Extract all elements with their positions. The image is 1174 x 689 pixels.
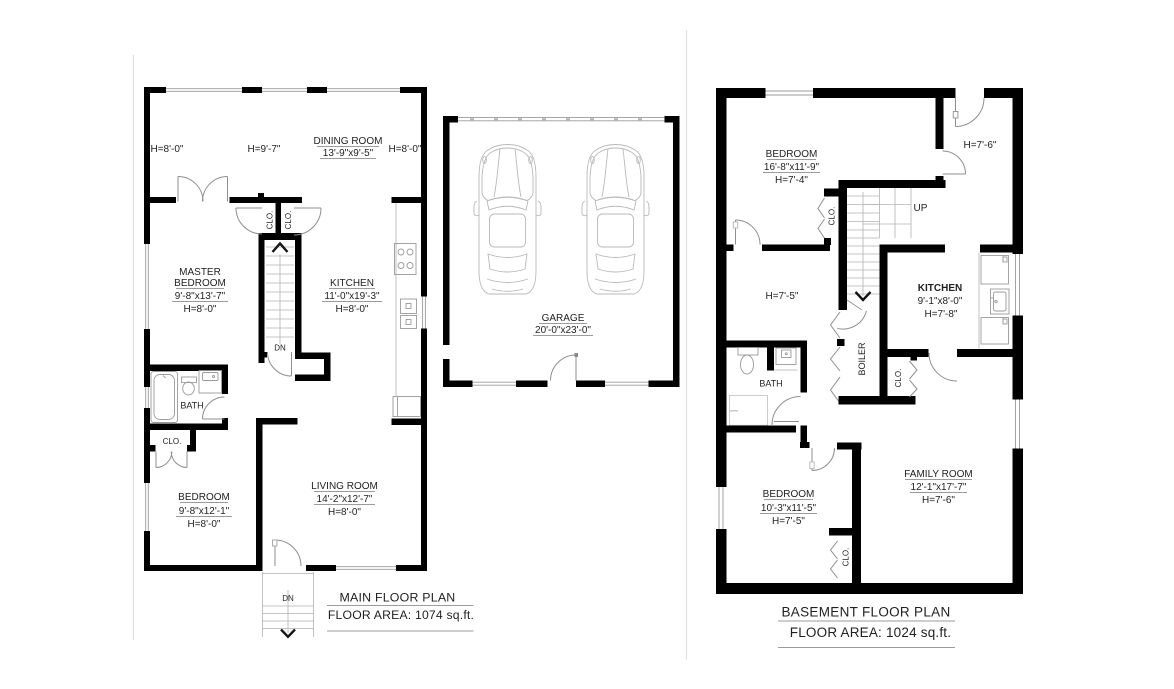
svg-text:H=7'-6": H=7'-6": [922, 495, 955, 506]
svg-text:KITCHEN: KITCHEN: [918, 283, 962, 294]
svg-text:BEDROOM: BEDROOM: [174, 278, 226, 289]
svg-text:11'-0"x19'-3": 11'-0"x19'-3": [324, 291, 380, 302]
svg-text:12'-1"x17'-7": 12'-1"x17'-7": [911, 482, 967, 493]
svg-text:GARAGE: GARAGE: [542, 313, 585, 324]
svg-text:BATH: BATH: [180, 401, 203, 411]
svg-text:H=7'-6": H=7'-6": [964, 140, 997, 151]
svg-text:BEDROOM: BEDROOM: [766, 149, 818, 160]
svg-text:MAIN FLOOR PLAN: MAIN FLOOR PLAN: [340, 591, 456, 605]
svg-text:H=8'-0": H=8'-0": [336, 304, 369, 315]
svg-text:LIVING ROOM: LIVING ROOM: [311, 481, 378, 492]
svg-text:DINING ROOM: DINING ROOM: [314, 136, 383, 147]
svg-text:H=8'-0": H=8'-0": [328, 507, 361, 518]
svg-text:CLO.: CLO.: [828, 207, 837, 226]
svg-text:BASEMENT FLOOR PLAN: BASEMENT FLOOR PLAN: [782, 605, 951, 620]
svg-text:20'-0"x23'-0": 20'-0"x23'-0": [535, 325, 591, 336]
svg-text:UP: UP: [914, 203, 928, 214]
svg-text:9'-8"x12'-1": 9'-8"x12'-1": [179, 506, 230, 517]
svg-text:H=8'-0": H=8'-0": [188, 519, 221, 530]
svg-text:FLOOR AREA: 1024 sq.ft.: FLOOR AREA: 1024 sq.ft.: [790, 625, 951, 640]
svg-text:H=9'-7": H=9'-7": [248, 144, 281, 155]
svg-text:DN: DN: [282, 594, 294, 603]
svg-text:CLO.: CLO.: [266, 211, 275, 230]
svg-text:BEDROOM: BEDROOM: [178, 492, 230, 503]
svg-text:10'-3"x11'-5": 10'-3"x11'-5": [761, 503, 817, 514]
svg-text:CLO.: CLO.: [842, 548, 851, 567]
svg-text:H=7'-4": H=7'-4": [775, 175, 808, 186]
svg-text:9'-1"x8'-0": 9'-1"x8'-0": [918, 296, 963, 307]
svg-text:FLOOR AREA: 1074 sq.ft.: FLOOR AREA: 1074 sq.ft.: [328, 608, 474, 622]
svg-text:H=7'-8": H=7'-8": [925, 309, 958, 320]
svg-text:16'-8"x11'-9": 16'-8"x11'-9": [764, 162, 820, 173]
svg-text:CLO.: CLO.: [284, 211, 293, 230]
svg-text:9'-8"x13'-7": 9'-8"x13'-7": [175, 291, 226, 302]
svg-text:H=8'-0": H=8'-0": [184, 304, 217, 315]
svg-text:BEDROOM: BEDROOM: [763, 489, 815, 500]
svg-text:MASTER: MASTER: [179, 267, 221, 278]
svg-text:DN: DN: [274, 344, 286, 353]
svg-text:BOILER: BOILER: [857, 342, 867, 376]
svg-text:13'-9"x9'-5": 13'-9"x9'-5": [323, 148, 374, 159]
svg-text:H=8'-0": H=8'-0": [151, 144, 184, 155]
svg-text:FAMILY ROOM: FAMILY ROOM: [904, 469, 973, 480]
svg-text:H=8'-0": H=8'-0": [389, 144, 422, 155]
svg-text:H=7'-5": H=7'-5": [766, 291, 799, 302]
svg-text:14'-2"x12'-7": 14'-2"x12'-7": [317, 494, 373, 505]
svg-text:CLO.: CLO.: [894, 369, 903, 388]
svg-text:BATH: BATH: [759, 379, 782, 389]
svg-text:H=7'-5": H=7'-5": [772, 516, 805, 527]
svg-text:KITCHEN: KITCHEN: [330, 278, 374, 289]
svg-text:CLO.: CLO.: [163, 437, 182, 446]
